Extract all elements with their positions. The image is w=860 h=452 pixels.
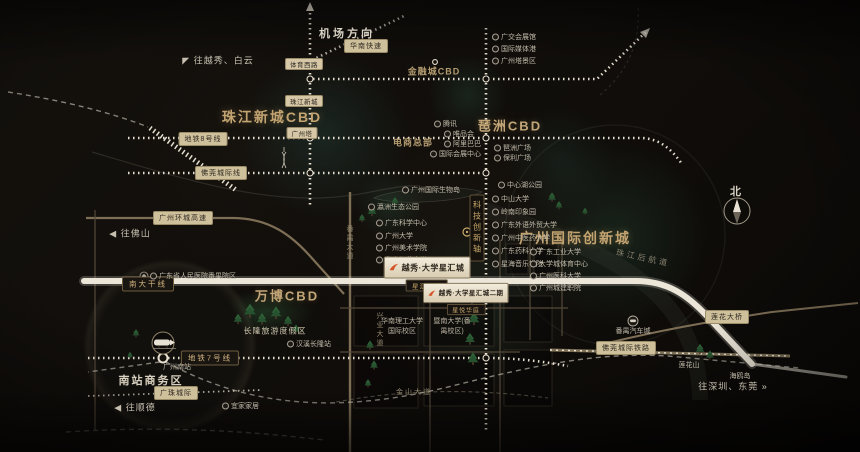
poi-yingzhou-eco-park: 瀛洲生态公园 xyxy=(368,202,419,212)
campus-scut-international: 华南理工大学国际校区 xyxy=(379,317,425,337)
ribbon-tech-innovation-axis: 科技创新轴 xyxy=(470,195,485,262)
poi-vipshop: 唯品会 xyxy=(444,129,474,139)
poi-alibaba: 阿里巴巴 xyxy=(444,139,481,149)
station-zhujiang-new-town: 珠江新城 xyxy=(285,95,323,107)
yuexiu-logo-icon xyxy=(390,259,399,277)
project-badge-box: 越秀·大学星汇城二期 xyxy=(423,283,509,303)
poi-chengjian-college: 广州城建职院 xyxy=(530,283,581,293)
road-panyu-avenue: 番禺大道 xyxy=(344,225,354,261)
dir-shenzhen-dongguan: 往深圳、东莞 » xyxy=(698,380,768,393)
project-badge-box: 越秀·大学星汇城 xyxy=(384,257,471,279)
poi-univ-town-sports-center: 大学城体育中心 xyxy=(530,259,588,269)
changlong-resort: 长隆旅游度假区 xyxy=(244,326,307,337)
poi-ikea: 宜家家居 xyxy=(222,401,259,411)
ribbon-foguan-railway: 佛莞城际铁路 xyxy=(596,341,656,355)
poi-media-port: 国际媒体港 xyxy=(492,44,536,54)
project-title: 越秀·大学星汇城 xyxy=(402,262,465,273)
map-canvas: 珠江新城CBD琶洲CBD金融城CBD电商总部广州国际创新城万博CBD南站商务区长… xyxy=(0,0,860,452)
cbd-pazhou: 琶洲CBD xyxy=(478,116,542,135)
campus-jinan-panyu: 暨南大学(番禺校区) xyxy=(431,317,473,337)
project-title: 越秀·大学星汇城二期 xyxy=(439,288,504,297)
station-tiyu-xilu: 体育西路 xyxy=(285,58,323,70)
poi-canton-tower-area: 广州塔景区 xyxy=(492,56,536,66)
project-badge-secondary: 越秀·大学星汇城二期 星悦华庭 xyxy=(423,283,509,315)
ribbon-foguan-intercity: 佛莞城际线 xyxy=(195,166,247,180)
ecommerce-hq: 电商总部 xyxy=(393,136,433,149)
poi-haiou-island: 海鸥岛 xyxy=(730,371,751,381)
poi-canton-fair-hall: 广交会展馆 xyxy=(492,32,536,42)
poi-guangzhou-university: 广州大学 xyxy=(376,231,413,241)
labels-layer: 珠江新城CBD琶洲CBD金融城CBD电商总部广州国际创新城万博CBD南站商务区长… xyxy=(0,0,860,452)
poi-academy-of-fine-arts: 广州美术学院 xyxy=(376,243,427,253)
yuexiu-logo-icon xyxy=(429,285,436,302)
ribbon-lianhua-bridge: 莲花大桥 xyxy=(705,310,749,324)
dir-shunde: ◀ 往顺德 xyxy=(114,401,155,414)
poi-gz-medical-university: 广州医科大学 xyxy=(530,271,581,281)
poi-central-lake-park: 中心湖公园 xyxy=(498,180,542,190)
cbd-financial-city: 金融城CBD xyxy=(408,65,461,78)
ribbon-guangzhu-intercity: 广珠城际 xyxy=(154,386,198,400)
station-canton-tower: 广州塔 xyxy=(287,127,318,139)
poi-pazhou-plaza: 琶洲广场 xyxy=(494,143,531,153)
poi-provincial-hospital-panyu: 广东省人民医院番禺院区 xyxy=(150,271,236,281)
ribbon-ring-expressway: 广州环城高速 xyxy=(153,211,213,225)
poi-poly-plaza: 保利广场 xyxy=(494,153,531,163)
poi-intl-exhibition-center: 国际会展中心 xyxy=(430,149,481,159)
poi-panyu-auto-city: 番禺汽车城 xyxy=(616,326,651,336)
poi-hanxi-changlong-station: 汉溪长隆站 xyxy=(287,339,331,349)
cbd-zhujiang-new-town: 珠江新城CBD xyxy=(222,107,322,127)
ribbon-metro-line-8: 地铁8号线 xyxy=(179,132,228,146)
road-jinshan-avenue: 金山大道 xyxy=(396,387,432,397)
compass-north-label: 北 xyxy=(730,183,744,199)
ribbon-huanan-expressway: 华南快速 xyxy=(344,39,388,53)
poi-guangzhou-south-station: 广州南站 xyxy=(163,362,191,372)
poi-gdut: 广东工业大学 xyxy=(530,247,581,257)
road-xingye-avenue: 兴业大道 xyxy=(374,312,384,348)
poi-gdufs: 广东外语外贸大学 xyxy=(492,220,557,230)
poi-sun-yat-sen-university: 中山大学 xyxy=(492,194,529,204)
poi-bio-island: 广州国际生物岛 xyxy=(402,185,460,195)
poi-tencent: 腾讯 xyxy=(434,119,457,129)
poi-gd-science-center: 广东科学中心 xyxy=(376,218,427,228)
dir-foshan: ◀ 往佛山 xyxy=(109,227,150,240)
dir-yuexiu-baiyun: ◤ 往越秀、白云 xyxy=(182,54,253,67)
poi-lingnan-impression-park: 岭南印象园 xyxy=(492,207,536,217)
poi-gzucm: 广州中医药大学 xyxy=(492,233,550,243)
cbd-wanbo: 万博CBD xyxy=(255,286,319,305)
pearl-river-rear-channel: 珠江后航道 xyxy=(615,247,671,269)
project-subtitle: 星悦华庭 xyxy=(447,304,486,315)
poi-lianhua-mountain: 莲花山 xyxy=(679,360,700,370)
